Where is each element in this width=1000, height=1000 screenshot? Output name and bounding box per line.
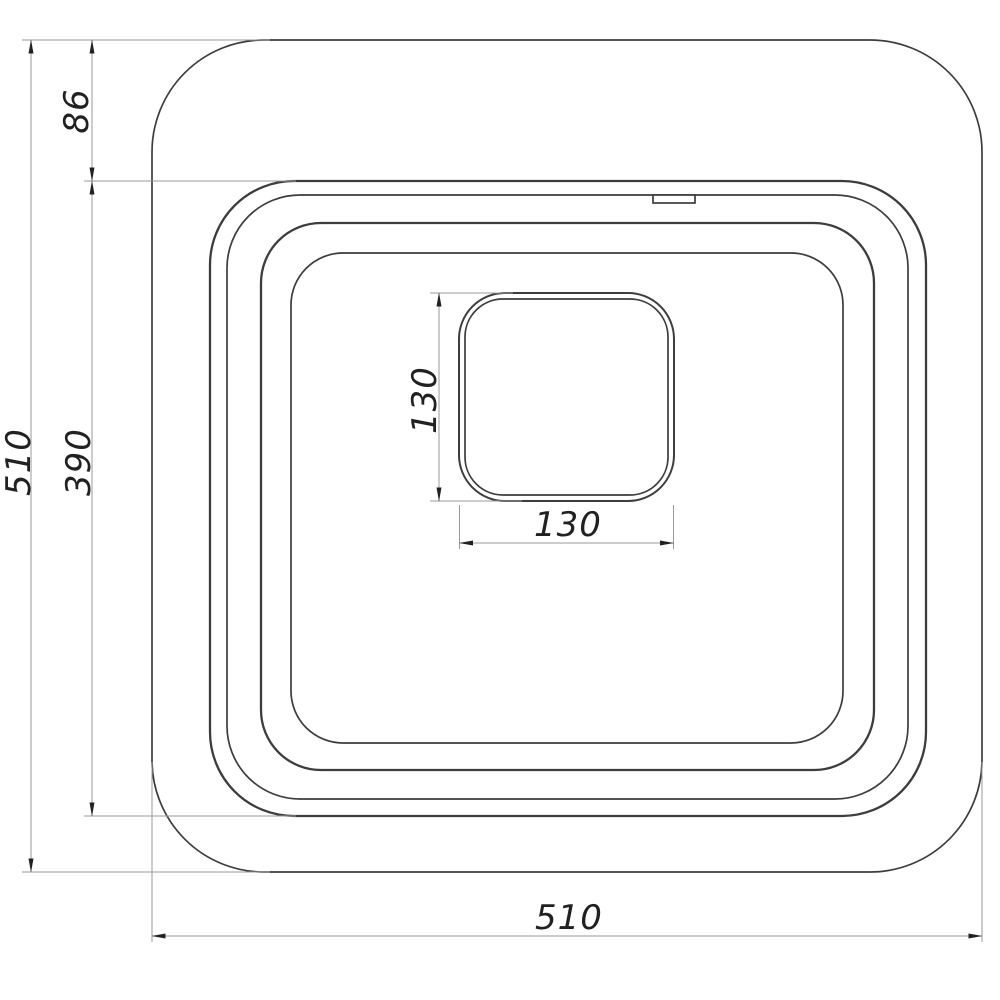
extension-lines [22,40,982,942]
drain-outline-inner [465,299,668,495]
contours [152,40,982,872]
outer-contour [152,40,982,872]
dim-label-overall-width: 510 [535,898,603,938]
overflow-notch [653,195,695,203]
dim-label-rim-offset: 86 [57,88,97,133]
bowl-contour-outer [261,223,874,770]
drain-outline-outer [459,293,674,501]
dim-label-bowl-depth: 390 [59,428,99,496]
rim-contour-inner [227,195,908,799]
sink-dimension-drawing: 510 86 390 130 130 510 [0,0,1000,1000]
dim-label-drain-width: 130 [534,505,602,545]
technical-drawing-canvas: 510 86 390 130 130 510 [0,0,1000,1000]
dim-label-overall-height: 510 [0,428,39,496]
bowl-contour-inner [291,253,843,743]
dimension-lines [31,40,982,936]
dim-label-drain-height: 130 [405,366,445,434]
dimension-labels: 510 86 390 130 130 510 [0,88,603,938]
rim-contour-outer [210,181,926,816]
